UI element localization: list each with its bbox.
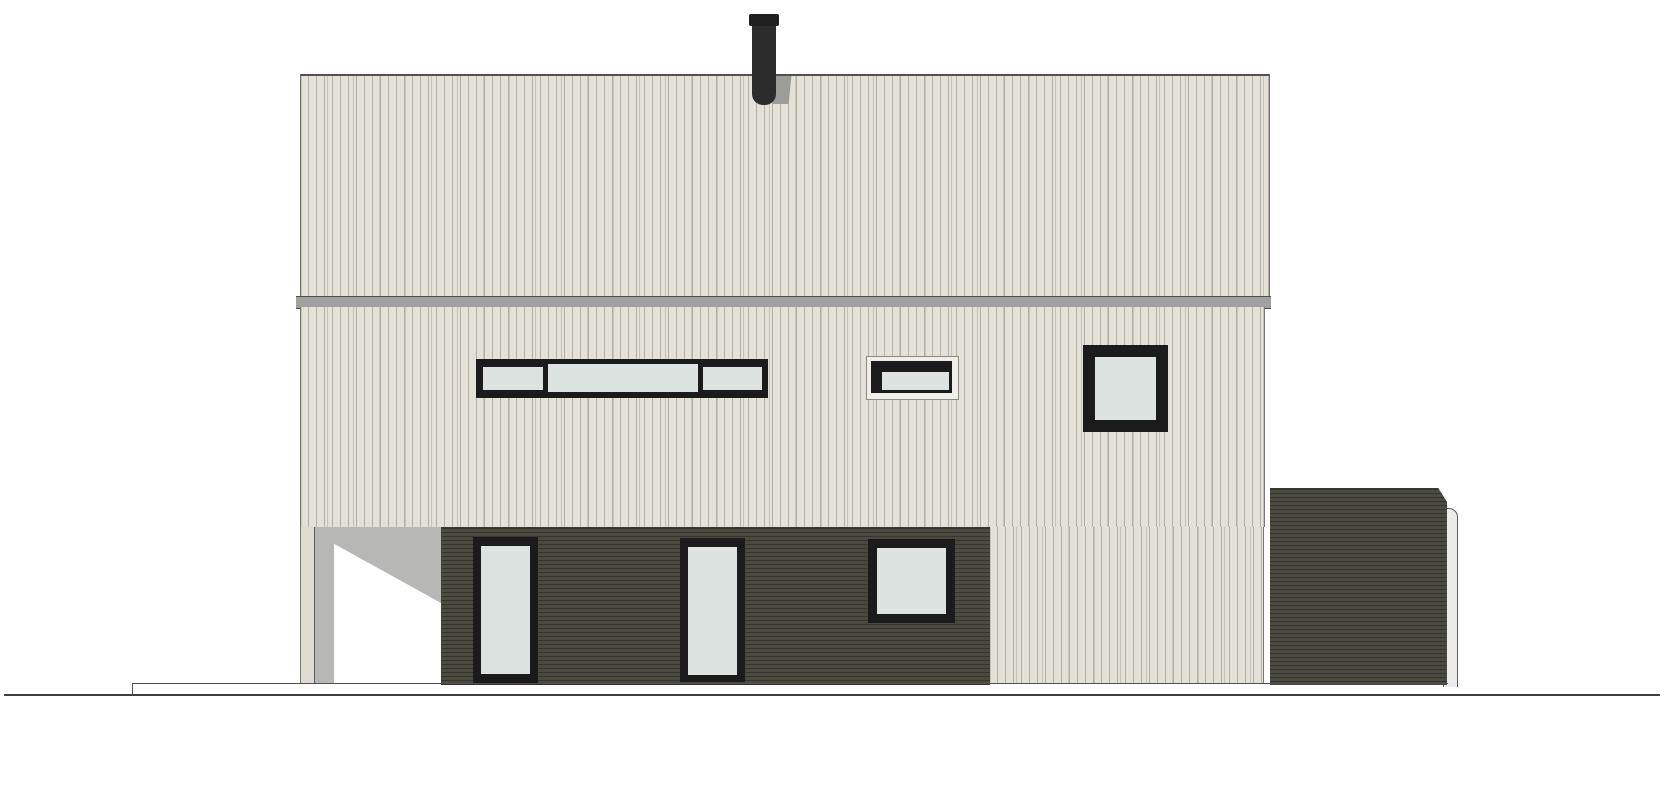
ribbon-window-pane-left: [483, 367, 543, 390]
corner-pier: [300, 527, 315, 684]
chimney: [752, 18, 776, 105]
trim-window: [866, 356, 959, 400]
roof-panel: [300, 74, 1270, 298]
ribbon-window-pane-middle: [548, 364, 698, 392]
elevation-drawing: [0, 0, 1670, 800]
mid-square-window-pane: [1095, 357, 1156, 420]
annex-volume: [1270, 488, 1447, 685]
lower-right-wall: [990, 527, 1264, 684]
lower-square-window-pane: [877, 548, 946, 614]
ribbon-window: [476, 359, 768, 398]
lower-tall-window-2: [680, 538, 745, 682]
lower-tall-window-1-pane: [481, 546, 530, 674]
chimney-cap: [749, 14, 779, 26]
lower-square-window: [868, 539, 955, 623]
trim-window-frame: [871, 361, 952, 393]
ribbon-window-pane-right: [703, 367, 762, 390]
ground-line: [4, 694, 1660, 696]
recess-shadow-strip: [313, 527, 334, 684]
lower-tall-window-2-pane: [688, 547, 737, 675]
lower-tall-window-1: [473, 537, 538, 683]
mid-square-window: [1083, 345, 1168, 432]
trim-window-pane: [882, 372, 949, 390]
